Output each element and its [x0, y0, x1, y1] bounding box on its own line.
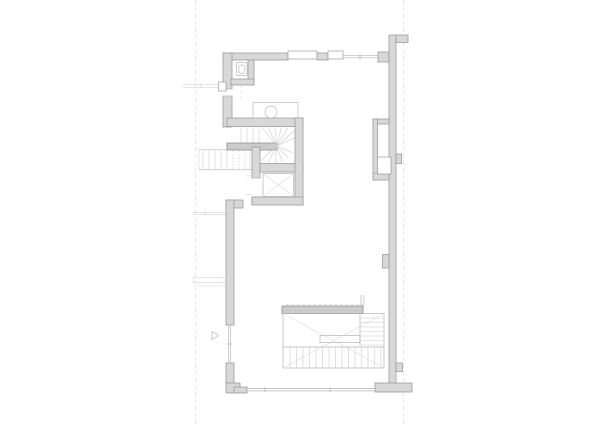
right-exterior-wall [389, 35, 396, 383]
duct-box [378, 157, 392, 174]
service-niche [373, 119, 391, 180]
right-wall-top-arm [396, 35, 408, 43]
left-upper-window [219, 82, 227, 91]
right-wall-bump-upper [396, 154, 402, 164]
room-divider-wall [227, 118, 303, 127]
bottom-left-corner-step [234, 387, 247, 393]
right-wall-bump-lower [396, 363, 403, 372]
wc-room-bottom-wall [231, 79, 254, 85]
entrance-arrow [212, 332, 219, 340]
niche-left-wall [373, 119, 378, 180]
void-parapet-wall [282, 306, 363, 314]
top-wall-segment [317, 53, 328, 60]
walls [223, 35, 412, 393]
plan-canvas [0, 0, 600, 424]
right-wall-pilaster-mid [383, 255, 390, 269]
window-lintel-2 [328, 51, 343, 59]
left-wall-bottom [226, 363, 234, 383]
sink-basin [265, 106, 277, 118]
bottom-right-footing [375, 383, 412, 392]
neighbor-context-lines [183, 83, 226, 287]
top-exterior-wall [223, 53, 288, 60]
floor-plan [0, 0, 600, 424]
elevator-bottom-wall [252, 197, 303, 205]
elevator-left-wall [252, 147, 260, 178]
top-right-pilaster [378, 52, 389, 62]
wc-room [231, 60, 254, 101]
window-lintel-1 [288, 51, 317, 59]
elevator-right-wall [295, 118, 303, 205]
left-wall-lower [226, 200, 234, 325]
sink-counter [253, 103, 298, 119]
